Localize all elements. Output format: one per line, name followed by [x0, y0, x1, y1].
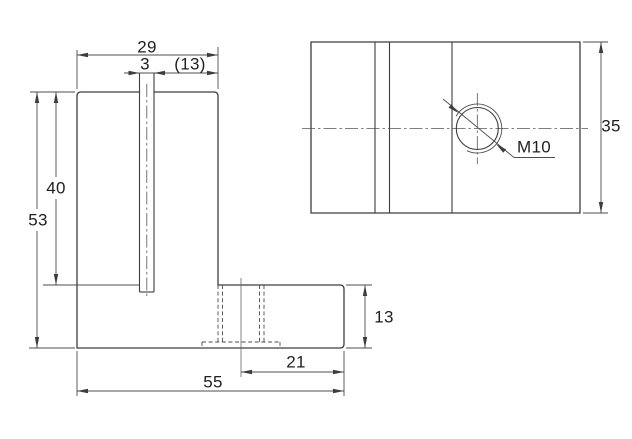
arrowhead [599, 42, 603, 53]
arrowheads [35, 42, 603, 393]
drawing-svg [0, 0, 632, 439]
dim-depth: 35 [601, 118, 621, 135]
arrowhead [363, 337, 367, 348]
front-view [29, 47, 372, 396]
dim-total-width: 55 [203, 374, 223, 391]
arrowhead [207, 71, 218, 75]
arrowhead [363, 285, 367, 296]
arrowhead [154, 71, 165, 75]
arrowhead [35, 337, 39, 348]
front-part-outline [77, 92, 344, 348]
dim-hole-to-edge: 21 [286, 354, 306, 371]
dim-total-height: 53 [28, 212, 48, 229]
arrowhead [35, 92, 39, 103]
arrowhead [333, 389, 344, 393]
arrowhead [207, 53, 218, 57]
arrowhead [129, 71, 140, 75]
drawing-canvas: 29 3 (13) 40 53 13 21 55 35 M10 [0, 0, 632, 439]
dim-slot-to-edge: (13) [174, 56, 205, 73]
top-view [302, 42, 608, 213]
front-dimension-lines [37, 55, 365, 391]
dim-plate-height: 40 [46, 180, 66, 197]
arrowhead [54, 92, 58, 103]
thread-callout-label: M10 [517, 139, 551, 156]
arrowhead [54, 274, 58, 285]
top-part-outline [311, 42, 580, 213]
top-edge-lines [375, 42, 452, 213]
arrowhead [333, 370, 344, 374]
arrowhead [77, 389, 88, 393]
dim-slot-width: 3 [140, 56, 150, 73]
dim-plate-width: 29 [137, 39, 157, 56]
arrowhead [496, 144, 506, 153]
arrowhead [449, 104, 459, 113]
dim-base-height: 13 [374, 309, 394, 326]
arrowhead [241, 370, 252, 374]
arrowhead [599, 202, 603, 213]
arrowhead [77, 53, 88, 57]
front-extension-lines [29, 47, 372, 396]
